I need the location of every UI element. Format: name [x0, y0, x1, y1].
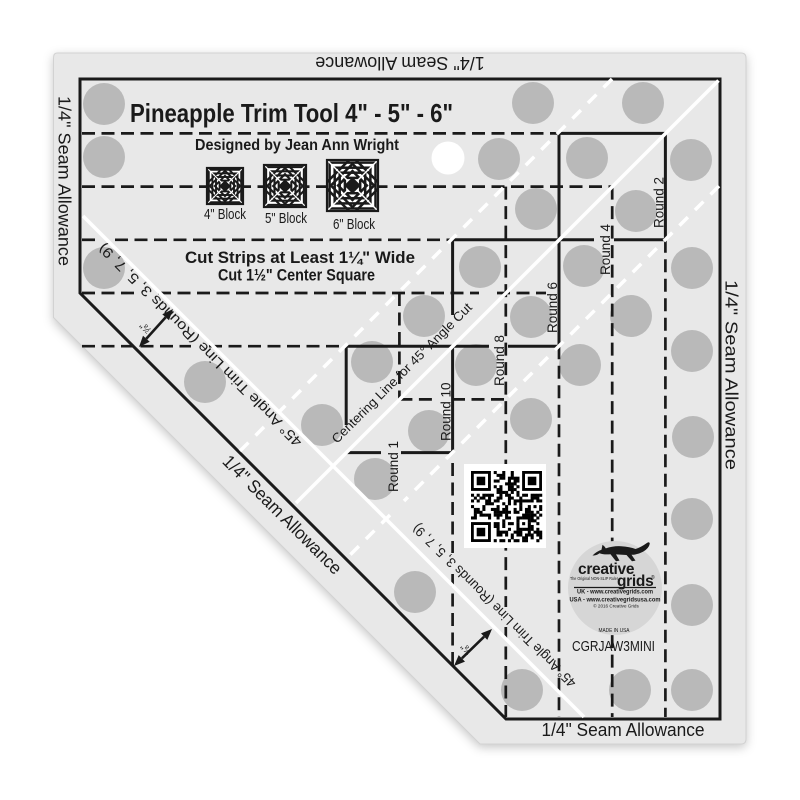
svg-text:1/4" Seam Allowance: 1/4" Seam Allowance	[542, 719, 705, 740]
svg-text:Round 2: Round 2	[651, 177, 666, 228]
svg-text:1/4" Seam Allowance: 1/4" Seam Allowance	[315, 53, 485, 73]
svg-text:Cut Strips at Least 1¼" Wide: Cut Strips at Least 1¼" Wide	[185, 249, 415, 267]
svg-text:The Original NON-SLIP Ruler: The Original NON-SLIP Ruler	[570, 576, 619, 581]
svg-text:© 2016 Creative Grids: © 2016 Creative Grids	[593, 603, 639, 609]
svg-text:Round 6: Round 6	[545, 282, 560, 333]
svg-text:5" Block: 5" Block	[265, 210, 307, 227]
svg-text:CGRJAW3MINI: CGRJAW3MINI	[572, 638, 655, 655]
svg-text:1/4" Seam Allowance: 1/4" Seam Allowance	[55, 96, 75, 266]
svg-text:Cut 1½" Center Square: Cut 1½" Center Square	[218, 267, 375, 285]
svg-text:UK - www.creativegrids.com: UK - www.creativegrids.com	[577, 589, 653, 596]
svg-text:USA - www.creativegridsusa.com: USA - www.creativegridsusa.com	[570, 597, 661, 604]
svg-text:MADE IN USA: MADE IN USA	[599, 628, 630, 634]
svg-text:Designed by Jean Ann Wright: Designed by Jean Ann Wright	[195, 137, 399, 154]
svg-text:®: ®	[651, 574, 655, 581]
svg-text:Round 1: Round 1	[386, 441, 401, 492]
svg-text:Pineapple Trim Tool 4" - 5" -: Pineapple Trim Tool 4" - 5" - 6"	[130, 98, 453, 128]
svg-text:Round 8: Round 8	[492, 335, 507, 386]
svg-text:1/4" Seam Allowance: 1/4" Seam Allowance	[722, 280, 742, 470]
svg-text:6" Block: 6" Block	[333, 216, 375, 233]
svg-text:Round 10: Round 10	[439, 382, 454, 441]
svg-text:Round 4: Round 4	[598, 223, 613, 275]
svg-text:4" Block: 4" Block	[204, 206, 246, 223]
